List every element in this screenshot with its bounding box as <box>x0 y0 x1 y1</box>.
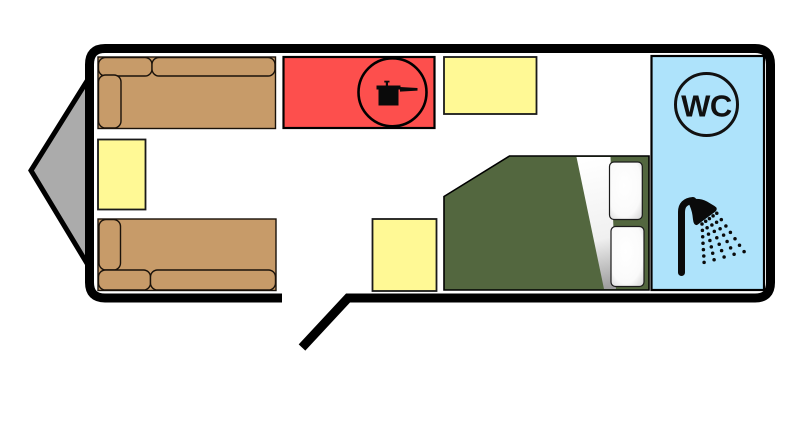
svg-text:WC: WC <box>681 89 732 124</box>
